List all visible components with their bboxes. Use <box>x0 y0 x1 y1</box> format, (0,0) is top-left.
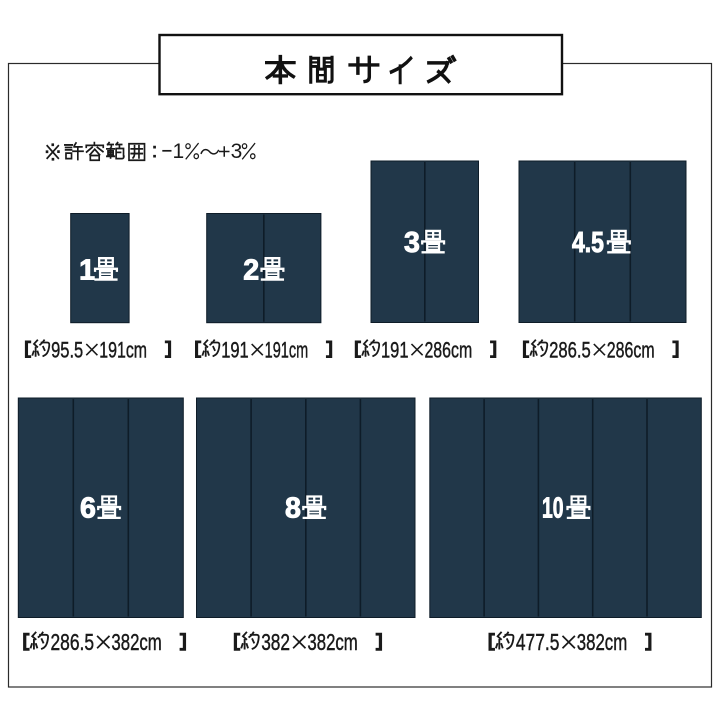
svg-text:286.5: 286.5 <box>549 337 591 362</box>
svg-text:191: 191 <box>381 337 409 362</box>
svg-text:382cm: 382cm <box>577 629 627 655</box>
svg-text:3: 3 <box>231 140 243 163</box>
svg-text:6: 6 <box>80 493 96 525</box>
svg-text:4.5: 4.5 <box>572 227 604 259</box>
svg-text:286.5: 286.5 <box>51 629 95 655</box>
svg-text:382cm: 382cm <box>307 629 357 655</box>
svg-text:382: 382 <box>261 629 290 655</box>
svg-text:191cm: 191cm <box>265 337 309 362</box>
svg-text:382cm: 382cm <box>111 629 161 655</box>
svg-text:191cm: 191cm <box>99 337 147 362</box>
svg-text:10: 10 <box>542 493 564 525</box>
svg-text:95.5: 95.5 <box>51 337 83 362</box>
svg-text:286cm: 286cm <box>607 337 655 362</box>
svg-text:191: 191 <box>221 337 249 362</box>
svg-text:286cm: 286cm <box>424 337 472 362</box>
svg-text:8: 8 <box>285 493 301 525</box>
svg-text:3: 3 <box>404 227 420 259</box>
svg-text:1: 1 <box>79 254 95 286</box>
svg-text:1: 1 <box>173 140 185 163</box>
svg-text:477.5: 477.5 <box>516 629 560 655</box>
svg-text:2: 2 <box>243 254 259 286</box>
